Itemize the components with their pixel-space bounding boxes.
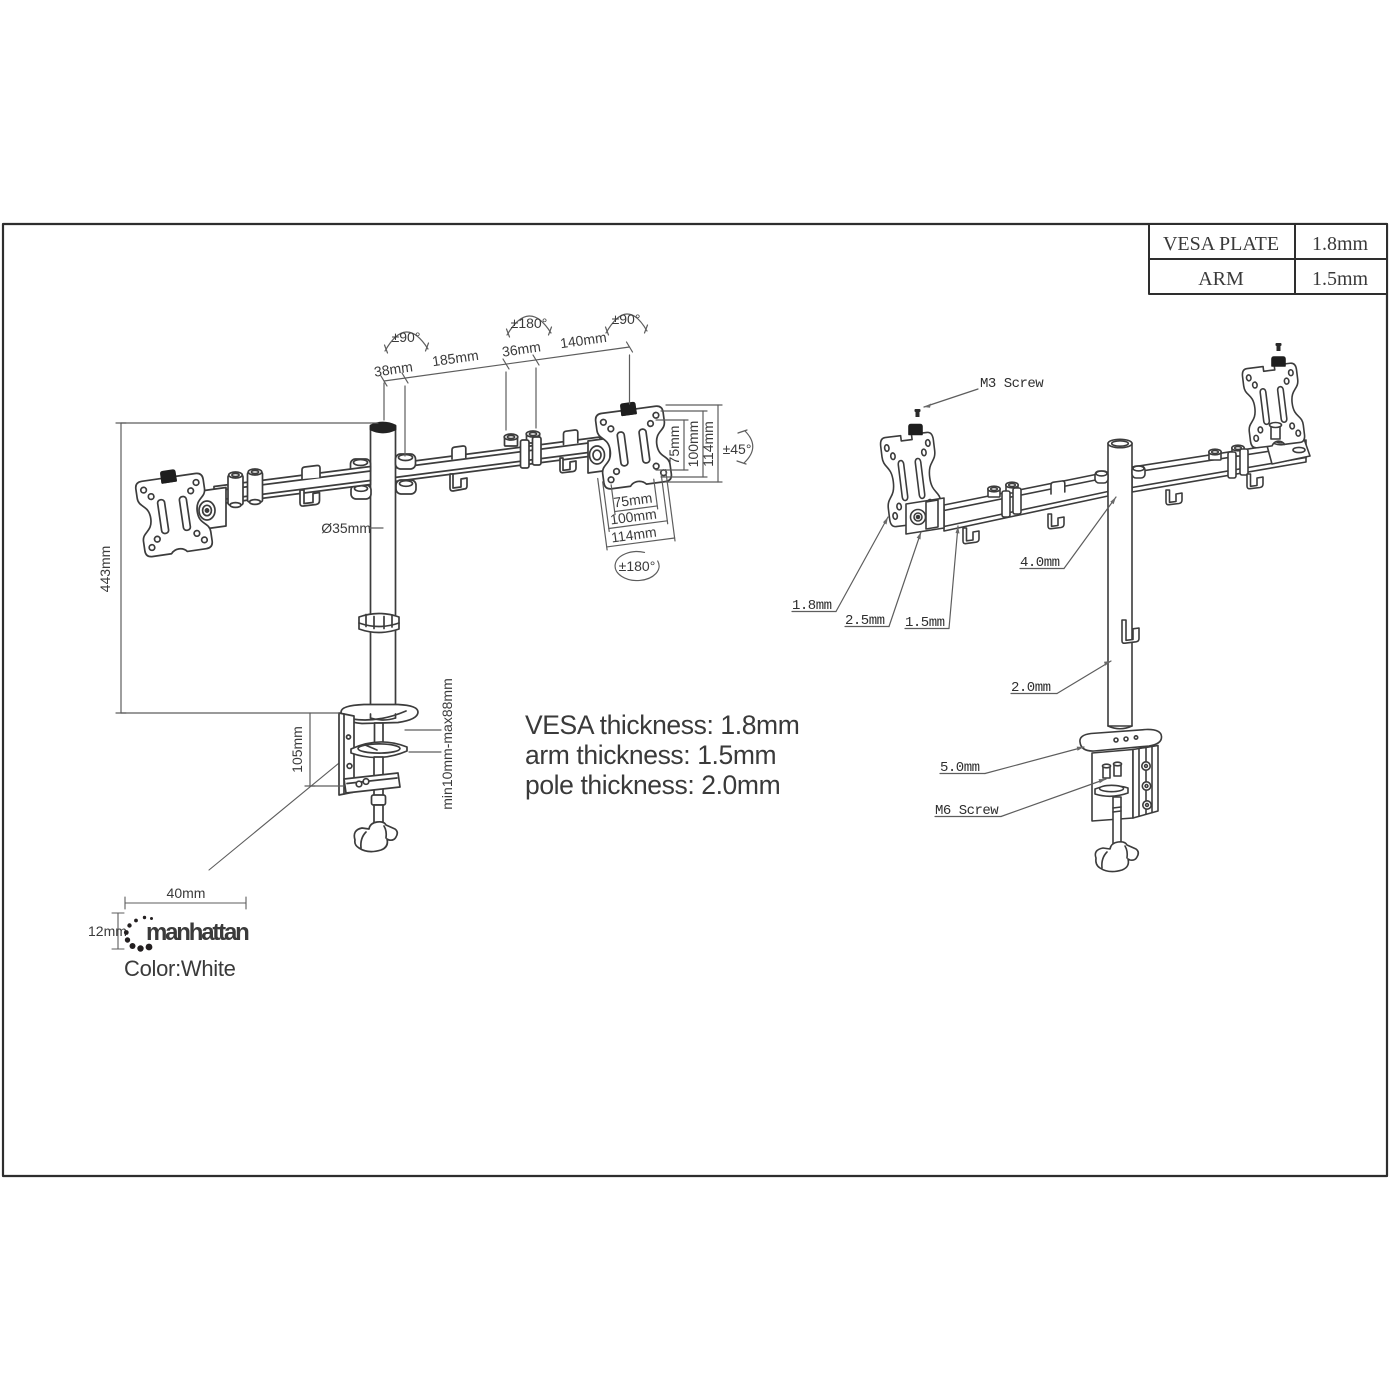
svg-text:arm thickness: 1.5mm: arm thickness: 1.5mm (525, 740, 776, 770)
svg-text:443mm: 443mm (97, 546, 113, 593)
svg-text:±180°: ±180° (511, 315, 548, 331)
svg-text:105mm: 105mm (289, 726, 305, 773)
svg-text:40mm: 40mm (167, 885, 206, 901)
svg-text:VESA PLATE: VESA PLATE (1163, 233, 1279, 255)
svg-text:±90°: ±90° (612, 311, 641, 327)
svg-text:75mm: 75mm (666, 426, 682, 465)
svg-text:Ø35mm: Ø35mm (321, 520, 371, 536)
svg-text:±45°: ±45° (723, 441, 752, 457)
svg-text:±180°: ±180° (619, 558, 656, 574)
svg-text:min10mm-max88mm: min10mm-max88mm (439, 678, 455, 809)
svg-text:ARM: ARM (1198, 268, 1244, 290)
svg-text:1.8mm: 1.8mm (1312, 233, 1369, 255)
svg-text:manhattan: manhattan (146, 919, 249, 946)
svg-text:100mm: 100mm (685, 421, 701, 468)
svg-text:±90°: ±90° (392, 329, 421, 345)
svg-text:pole thickness: 2.0mm: pole thickness: 2.0mm (525, 770, 780, 800)
svg-text:1.5mm: 1.5mm (1312, 268, 1369, 290)
svg-text:114mm: 114mm (700, 421, 716, 467)
svg-text:VESA thickness: 1.8mm: VESA thickness: 1.8mm (525, 710, 799, 740)
svg-text:Color:White: Color:White (124, 956, 236, 981)
svg-text:M3 Screw: M3 Screw (980, 376, 1044, 392)
svg-text:12mm: 12mm (88, 923, 127, 939)
